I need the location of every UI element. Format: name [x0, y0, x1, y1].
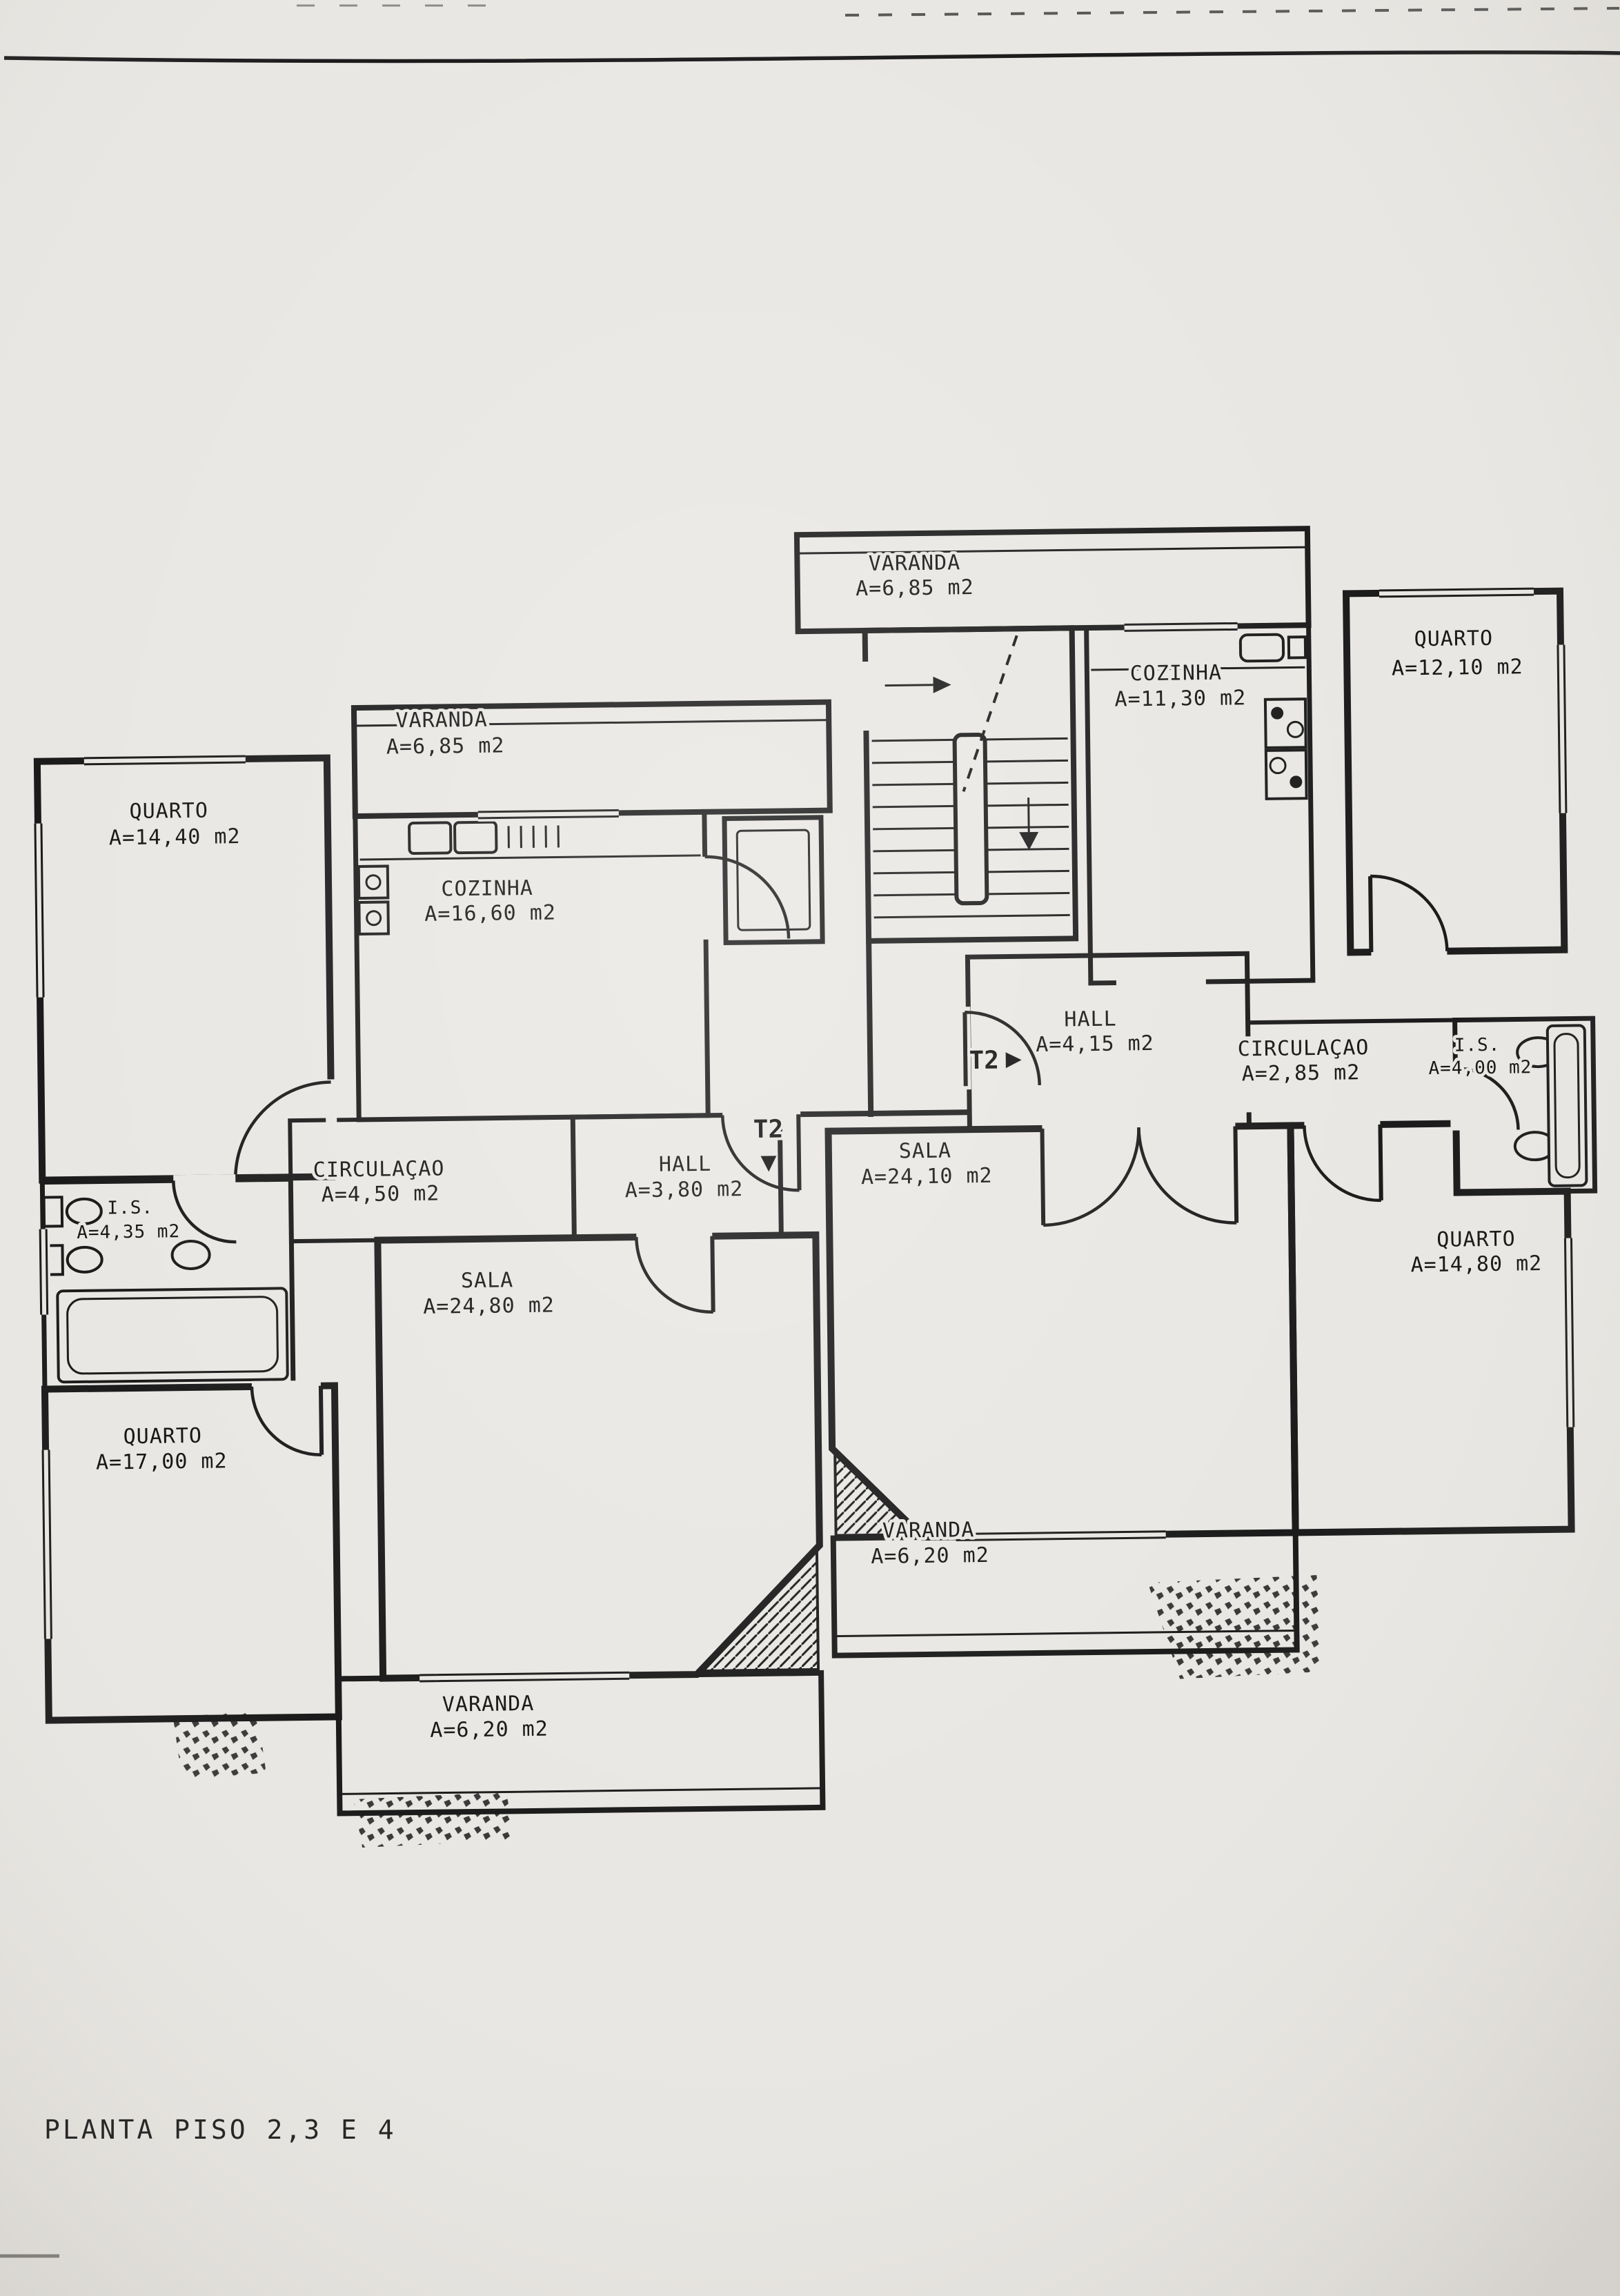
entry-arrow-down-icon: ▼ — [760, 1151, 777, 1175]
room-area: A=6,20 m2 — [871, 1543, 989, 1569]
sink-basin-icon — [1241, 635, 1283, 662]
room-varanda-top: VARANDA A=6,85 m2 — [855, 551, 974, 601]
room-name: CIRCULAÇAO — [313, 1156, 445, 1182]
bathtub-icon — [57, 1288, 288, 1382]
appliance-icon — [359, 866, 388, 898]
room-name: VARANDA — [442, 1692, 535, 1717]
room-area: A=6,85 m2 — [856, 575, 974, 601]
room-area: A=4,00 m2 — [1428, 1057, 1532, 1079]
rubble-texture — [353, 1792, 514, 1848]
appliance-icon — [359, 902, 388, 934]
room-area: A=2,85 m2 — [1242, 1060, 1361, 1086]
room-area: A=4,50 m2 — [322, 1182, 440, 1207]
room-name: HALL — [659, 1152, 712, 1177]
plan-title: PLANTA PISO 2,3 E 4 — [44, 2115, 397, 2145]
sink-basin-icon — [455, 822, 497, 853]
bathtub-icon — [1548, 1025, 1587, 1186]
unit-marker-t2-right: T2 ▶ — [969, 1046, 1022, 1075]
room-name: QUARTO — [1436, 1227, 1516, 1252]
room-area: A=12,10 m2 — [1392, 655, 1523, 680]
room-name: HALL — [1064, 1007, 1117, 1032]
room-name: VARANDA — [869, 551, 961, 576]
stair-down-arrow — [1029, 798, 1029, 832]
unit-label: T2 — [753, 1115, 784, 1144]
floor-plan-drawing: VARANDA A=6,85 m2 QUARTO A=12,10 m2 COZI… — [0, 0, 1620, 2296]
room-area: A=3,80 m2 — [625, 1177, 744, 1203]
paper-background — [0, 0, 1620, 2296]
room-name: COZINHA — [1129, 661, 1222, 686]
room-area: A=24,80 m2 — [423, 1294, 555, 1319]
room-area: A=14,40 m2 — [109, 824, 241, 850]
room-circulacao-right: CIRCULAÇAO A=2,85 m2 — [1238, 1036, 1370, 1086]
room-circulacao-left: CIRCULAÇAO A=4,50 m2 — [313, 1156, 445, 1207]
washbasin-icon — [172, 1241, 209, 1269]
stove-icon — [1266, 750, 1307, 799]
unit-label: T2 — [969, 1047, 999, 1076]
room-area: A=14,80 m2 — [1410, 1251, 1542, 1277]
room-name: QUARTO — [1414, 626, 1493, 651]
room-name: QUARTO — [123, 1424, 202, 1449]
room-area: A=4,35 m2 — [77, 1221, 180, 1243]
room-area: A=6,20 m2 — [430, 1717, 549, 1743]
room-name: VARANDA — [882, 1518, 975, 1543]
room-name: VARANDA — [395, 708, 488, 733]
room-area: A=6,85 m2 — [386, 733, 505, 759]
room-area: A=4,15 m2 — [1036, 1031, 1154, 1057]
room-area: A=17,00 m2 — [96, 1449, 228, 1474]
room-name: I.S. — [107, 1198, 153, 1219]
room-name: SALA — [461, 1268, 514, 1293]
room-name: SALA — [899, 1139, 952, 1164]
room-area: A=11,30 m2 — [1114, 686, 1246, 711]
toilet-icon — [44, 1197, 63, 1226]
stair-up-arrow — [885, 685, 934, 686]
room-area: A=24,10 m2 — [861, 1164, 993, 1189]
room-name: I.S. — [1454, 1035, 1501, 1056]
sink-basin-icon — [1289, 637, 1305, 657]
room-area: A=16,60 m2 — [424, 900, 556, 926]
room-name: QUARTO — [129, 799, 208, 824]
entry-arrow-right-icon: ▶ — [1005, 1047, 1022, 1071]
sink-basin-icon — [409, 822, 451, 853]
room-name: COZINHA — [441, 876, 533, 902]
room-name: CIRCULAÇAO — [1238, 1036, 1370, 1061]
